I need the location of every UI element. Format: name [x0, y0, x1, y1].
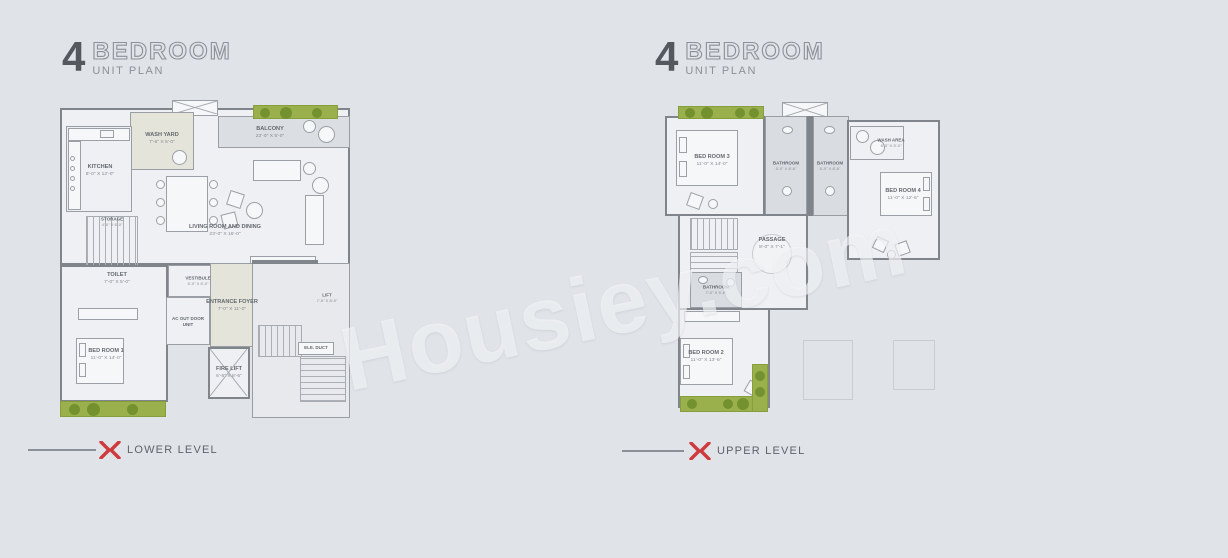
level-marker-icon [98, 441, 122, 459]
wc-icon [698, 276, 708, 284]
stove-burner [70, 176, 75, 181]
room-label-bathroom: BATHROOM 5'-0" X 8'-6" [817, 160, 843, 171]
dining-chair [156, 216, 165, 225]
lower-level-label: LOWER LEVEL [127, 444, 218, 456]
pillow [923, 197, 930, 211]
room-label-bathroom: BATHROOM 5'-0" X 8'-6" [773, 160, 799, 171]
plant-icon [755, 387, 765, 397]
dining-chair [156, 180, 165, 189]
sofa [253, 160, 301, 181]
level-marker-icon [688, 442, 712, 460]
stove-burner [70, 186, 75, 191]
side-table [303, 162, 316, 175]
room-label-storage: STORAGE 4'-0" X 6'-0" [101, 216, 123, 227]
room-label-bedroom4: BED ROOM 4 11'-0" X 12'-6" [885, 187, 920, 201]
room-label-ac-unit: AC OUT DOOR UNIT [171, 316, 206, 328]
header-title: BEDROOM [92, 40, 231, 64]
pillow [923, 177, 930, 191]
sofa [305, 195, 324, 245]
plant-icon [685, 108, 695, 118]
lower-level-header: 4 BEDROOM UNIT PLAN [62, 38, 232, 77]
upper-level-label: UPPER LEVEL [717, 445, 805, 457]
upper-level-floorplan: BED ROOM 3 11'-0" X 14'-0" BATHROOM 5'-0… [660, 100, 950, 420]
pillow [79, 363, 86, 377]
upper-level-header: 4 BEDROOM UNIT PLAN [655, 38, 825, 77]
room-label-bedroom1: BED ROOM 1 11'-0" X 14'-0" [88, 347, 123, 361]
planter-strip [678, 106, 764, 119]
header-subtitle: UNIT PLAN [685, 65, 824, 77]
side-table [312, 177, 329, 194]
dining-chair [209, 198, 218, 207]
room-label-balcony: BALCONY 22'-0" X 5'-0" [256, 125, 285, 139]
balcony-chair [303, 120, 316, 133]
bedroom-count: 4 [62, 38, 85, 76]
plant-icon [701, 107, 713, 119]
plant-icon [260, 108, 270, 118]
stove-burner [70, 166, 75, 171]
marker-line [28, 449, 96, 451]
wc-icon [824, 126, 835, 134]
wardrobe [78, 308, 138, 320]
basin-icon [782, 186, 792, 196]
room-label-lift: LIFT 7'-0" X 8'-0" [317, 292, 338, 303]
planter-strip [60, 401, 166, 417]
plant-icon [127, 404, 138, 415]
bed [76, 338, 124, 384]
pillow [679, 161, 687, 177]
marker-line [622, 450, 684, 452]
plant-icon [737, 398, 749, 410]
lobby-stairs-lower-flight [300, 356, 346, 402]
floorplan-page: 4 BEDROOM UNIT PLAN 4 BEDROOM UNIT PLAN [0, 0, 1228, 558]
planter-strip [752, 364, 768, 412]
wc-icon [782, 126, 793, 134]
bedroom-count: 4 [655, 38, 678, 76]
stove-burner [70, 156, 75, 161]
plant-icon [312, 108, 322, 118]
plant-icon [69, 404, 80, 415]
x-hatch-icon [783, 103, 827, 117]
room-label-living-dining: LIVING ROOM AND DINING 23'-0" X 16'-0" [189, 223, 261, 237]
room-label-bathroom: BATHROOM 7'-0" X 5'-6" [703, 284, 729, 295]
coffee-table [246, 202, 263, 219]
header-subtitle: UNIT PLAN [92, 65, 231, 77]
lower-level-floorplan: KITCHEN 8'-0" X 12'-0" WASH YARD 7'-6" X… [60, 100, 350, 420]
room-label-wash-area: WASH AREA 6'-0" X 5'-0" [877, 137, 904, 148]
plant-icon [749, 108, 759, 118]
washing-machine [172, 150, 187, 165]
plant-icon [687, 399, 697, 409]
room-label-entrance-foyer: ENTRANCE FOYER 7'-0" X 11'-0" [206, 298, 258, 312]
plant-icon [755, 371, 765, 381]
plant-icon [87, 403, 100, 416]
plant-icon [280, 107, 292, 119]
balcony-table [318, 126, 335, 143]
ghost-outline [803, 340, 853, 400]
pillow [679, 137, 687, 153]
kitchen-counter [68, 128, 130, 141]
plant-icon [735, 108, 745, 118]
room-label-bedroom2: BED ROOM 2 11'-0" X 13'-6" [688, 349, 723, 363]
wardrobe [684, 311, 740, 322]
room-label-kitchen: KITCHEN 8'-0" X 12'-0" [86, 163, 115, 177]
room-label-vestibule: VESTIBULE 5'-0" X 5'-0" [185, 275, 210, 286]
pillow [683, 365, 690, 379]
wall-segment [252, 260, 318, 264]
room-label-ele-duct: ELE. DUCT [304, 345, 328, 351]
dining-chair [209, 180, 218, 189]
stairs-upper-flight [690, 218, 738, 250]
plant-icon [723, 399, 733, 409]
header-title: BEDROOM [685, 40, 824, 64]
room-label-passage: PASSAGE 8'-0" X 7'-1" [759, 236, 786, 250]
room-label-wash-yard: WASH YARD 7'-6" X 5'-0" [145, 131, 178, 145]
lobby-stairs-upper-flight [258, 325, 302, 357]
planter-strip [253, 105, 338, 119]
kitchen-counter [68, 141, 81, 210]
kitchen-sink [100, 130, 114, 138]
room-label-bedroom3: BED ROOM 3 11'-0" X 14'-0" [694, 153, 729, 167]
pillow [79, 343, 86, 357]
dining-chair [156, 198, 165, 207]
basin-icon [856, 130, 869, 143]
side-table [887, 250, 896, 259]
room-label-toilet: TOILET 7'-0" X 5'-0" [104, 271, 130, 285]
pouf [708, 199, 718, 209]
room-label-fire-lift: FIRE LIFT 6'-6" X 8'-6" [216, 365, 242, 379]
ghost-outline [893, 340, 935, 390]
basin-icon [825, 186, 835, 196]
